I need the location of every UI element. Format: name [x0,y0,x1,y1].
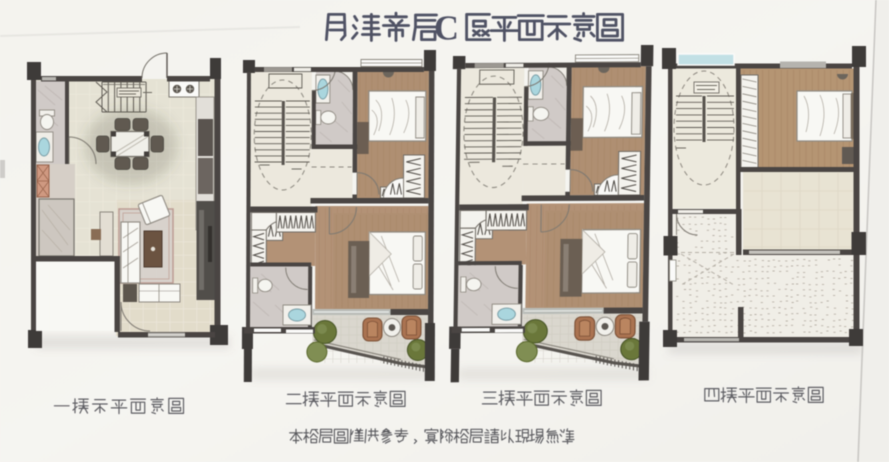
svg-text:C: C [434,10,459,48]
